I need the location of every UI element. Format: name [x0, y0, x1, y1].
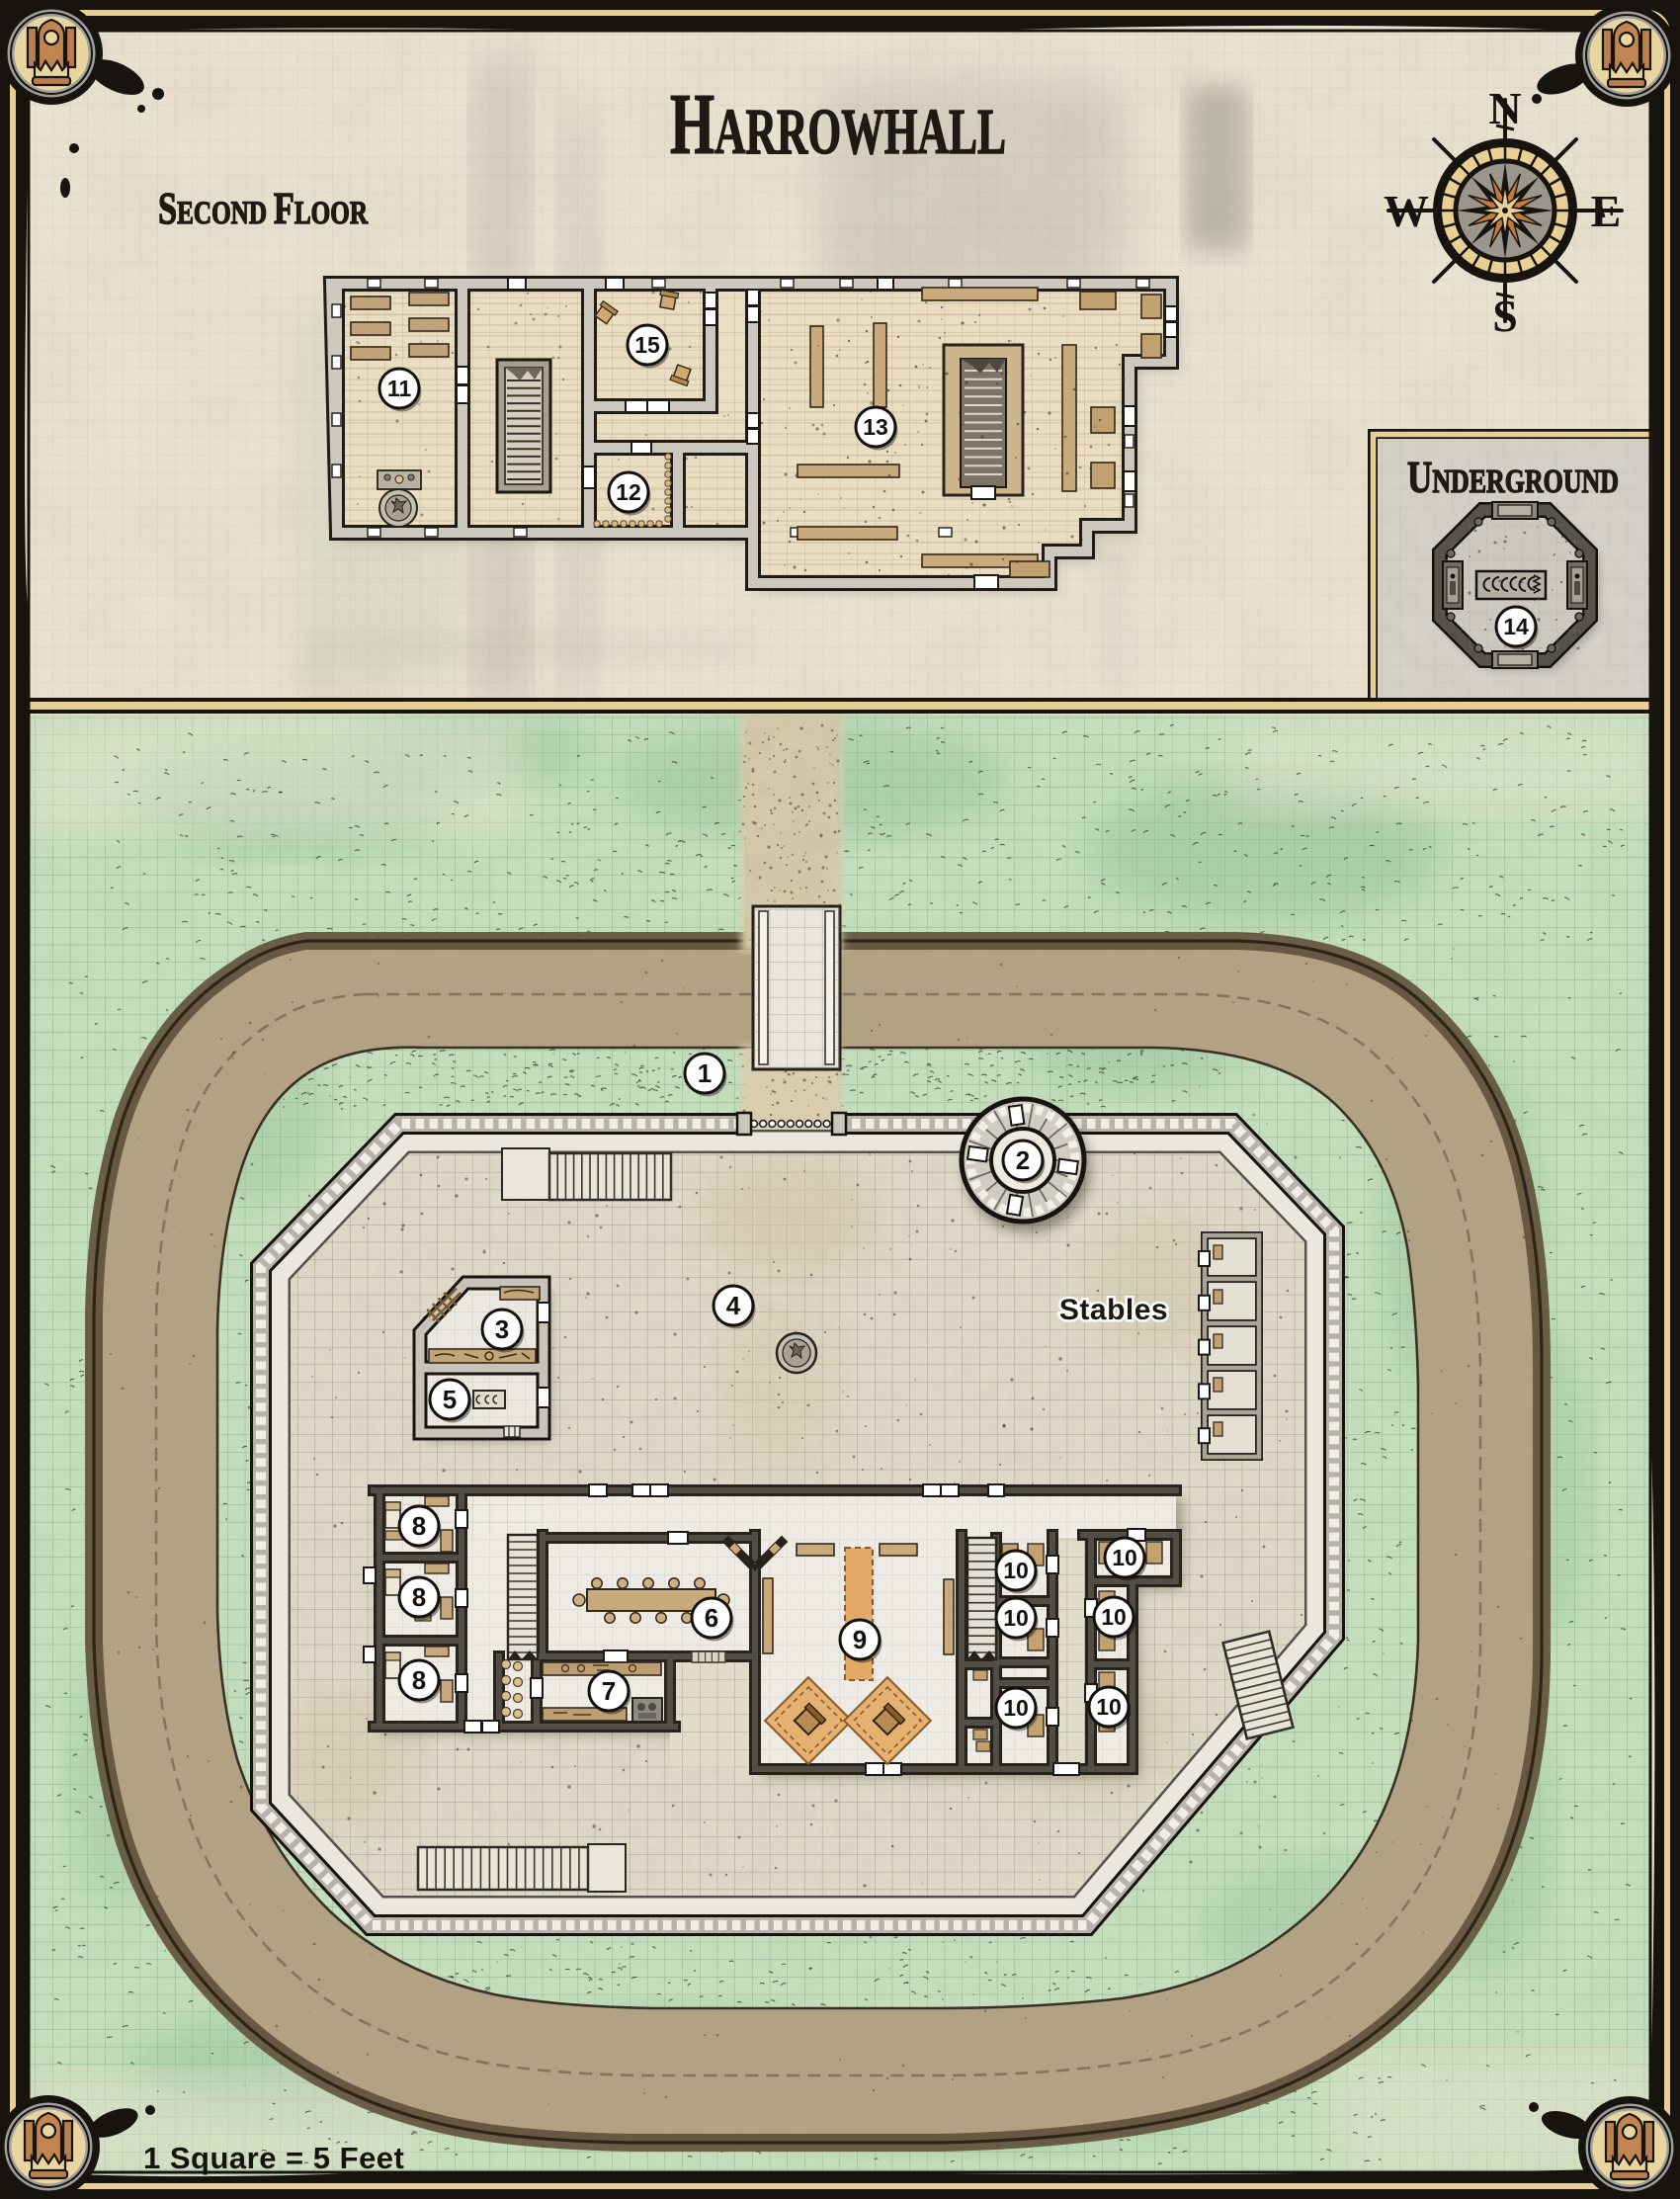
svg-text:5: 5 [443, 1385, 457, 1414]
svg-text:12: 12 [616, 479, 641, 505]
svg-text:13: 13 [863, 414, 888, 440]
svg-text:10: 10 [1101, 1604, 1127, 1630]
svg-text:10: 10 [1003, 1695, 1029, 1721]
svg-text:8: 8 [412, 1511, 426, 1541]
svg-text:3: 3 [495, 1314, 509, 1344]
svg-text:E: E [1591, 186, 1622, 236]
svg-text:1: 1 [698, 1058, 712, 1088]
svg-text:10: 10 [1003, 1605, 1029, 1631]
svg-text:15: 15 [634, 332, 660, 358]
svg-text:14: 14 [1503, 614, 1529, 639]
svg-text:10: 10 [1112, 1545, 1137, 1570]
svg-text:4: 4 [726, 1291, 741, 1320]
svg-text:2: 2 [1016, 1145, 1030, 1175]
svg-text:7: 7 [602, 1676, 616, 1706]
svg-text:W: W [1384, 186, 1429, 236]
svg-text:S: S [1492, 291, 1518, 341]
svg-text:8: 8 [412, 1665, 426, 1695]
svg-text:Stables: Stables [1059, 1294, 1168, 1326]
svg-text:N: N [1488, 83, 1521, 133]
svg-text:9: 9 [853, 1625, 867, 1654]
svg-text:1 Square = 5 Feet: 1 Square = 5 Feet [143, 2141, 404, 2175]
svg-text:6: 6 [705, 1603, 718, 1633]
svg-text:8: 8 [412, 1582, 426, 1612]
svg-text:11: 11 [387, 376, 412, 401]
svg-text:10: 10 [1096, 1694, 1122, 1720]
svg-text:10: 10 [1003, 1558, 1029, 1583]
